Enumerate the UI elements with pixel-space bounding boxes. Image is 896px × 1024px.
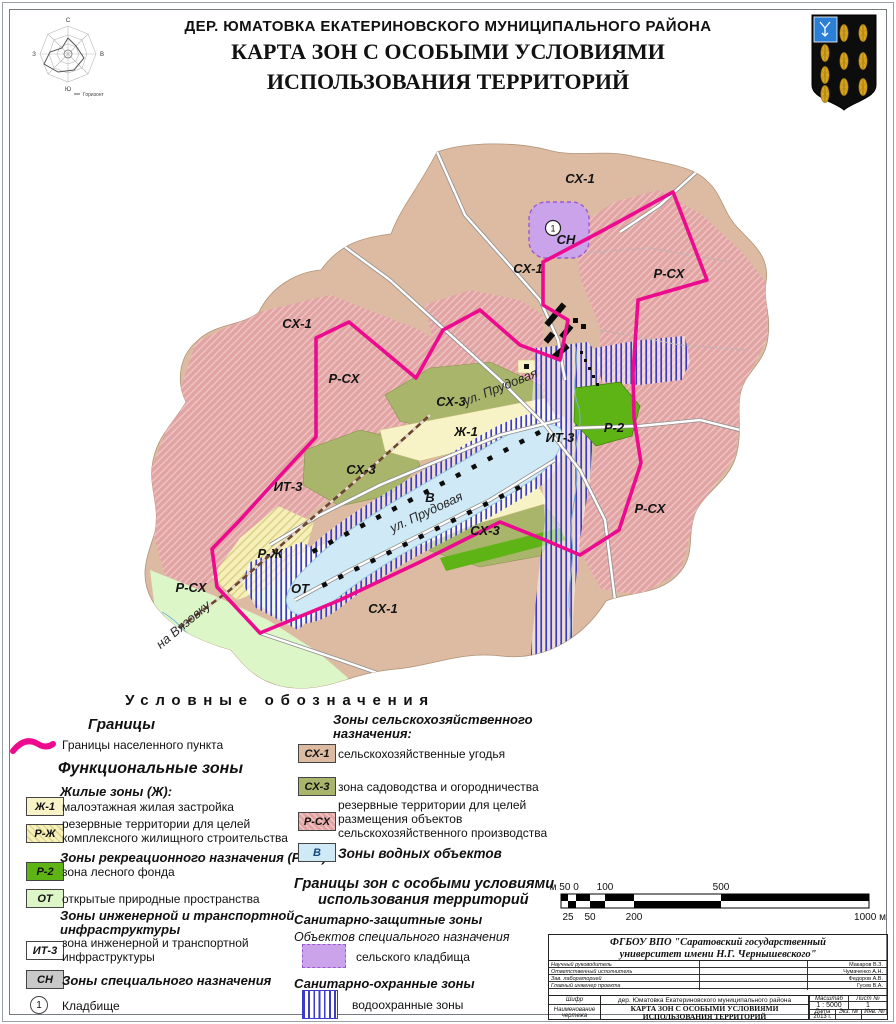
wind-rose-caption: Горизонт — [83, 92, 105, 98]
swatch-rzh: Р-Ж — [26, 824, 64, 843]
legend-rural-cemetery: сельского кладбища — [356, 950, 470, 964]
zone-label: СХ-1 — [513, 261, 542, 276]
cemetery-legend-marker: 1 — [30, 996, 48, 1014]
zone-label: Р-СХ — [176, 580, 208, 595]
swatch-sx3: СХ-3 — [298, 777, 336, 796]
legend-water-protection: водоохранные зоны — [352, 998, 463, 1012]
role-label: Научный руководитель — [551, 962, 612, 968]
page-title-line3: ИСПОЛЬЗОВАНИЯ ТЕРРИТОРИЙ — [140, 69, 756, 95]
zone-label: Р-СХ — [654, 266, 686, 281]
settlement-boundary-swatch — [8, 732, 58, 758]
drawing-title-line2: ИСПОЛЬЗОВАНИЯ ТЕРРИТОРИЙ — [643, 1013, 767, 1021]
drawing-title: КАРТА ЗОН С ОСОБЫМИ УСЛОВИЯМИ ИСПОЛЬЗОВА… — [601, 1005, 808, 1020]
legend-it3-desc2: инфраструктуры — [62, 950, 155, 964]
organization-line1: ФГБОУ ВПО "Саратовский государственный — [549, 937, 887, 949]
legend-rsx-desc2: размещения объектов — [338, 812, 462, 826]
scale-bar-segments — [561, 894, 869, 908]
scale-label-0: 0 — [573, 882, 579, 893]
organization-line2: университет имени Н.Г. Чернышевского" — [549, 949, 887, 961]
legend-cemetery-desc: Кладбище — [62, 999, 120, 1013]
legend-sx1-desc: сельскохозяйственные угодья — [338, 747, 505, 761]
wind-rose-w: З — [32, 52, 36, 58]
title-block-bottom: Шифр Наименование чертежа дер. Юматовка … — [549, 995, 887, 1020]
zone-label: СХ-3 — [470, 523, 500, 538]
zone-label: Р-2 — [604, 420, 625, 435]
role-row: Зав. лабораторией Федоров А.В. — [549, 975, 887, 982]
wind-rose-s: Ю — [65, 87, 71, 93]
role-label: Главный инженер проекта — [551, 983, 620, 989]
legend-rsx-desc3: сельскохозяйственного производства — [338, 826, 547, 840]
page-title-line2: КАРТА ЗОН С ОСОБЫМИ УСЛОВИЯМИ — [140, 39, 756, 65]
zone-label: СХ-3 — [346, 462, 376, 477]
swatch-it3: ИТ-3 — [26, 941, 64, 960]
zone-label: ИТ-3 — [274, 479, 304, 494]
role-name: Чумаченко А.Н. — [843, 969, 883, 975]
legend-v-desc: Зоны водных объектов — [338, 846, 502, 861]
role-label: Ответственный исполнитель — [551, 969, 632, 975]
value-column: дер. Юматовка Екатериновского муниципаль… — [601, 996, 809, 1020]
legend-header: Условные обозначения — [70, 692, 490, 709]
organization-name: ФГБОУ ВПО "Саратовский государственный у… — [549, 935, 887, 961]
legend-agri-title2: назначения: — [333, 726, 412, 741]
role-row: Главный инженер проекта Гусев В.А. — [549, 982, 887, 989]
object-label: Шифр — [549, 996, 600, 1005]
role-name: Федоров А.В. — [849, 976, 883, 982]
label-column: Шифр Наименование чертежа — [549, 996, 601, 1020]
legend-sn-desc: Зоны специального назначения — [62, 973, 271, 988]
legend-recreation-title: Зоны рекреационного назначения (Р ОТ): — [60, 850, 331, 865]
zone-label: СН — [557, 232, 576, 247]
legend-sx3-desc: зона садоводства и огородничества — [338, 780, 539, 794]
legend-rzh-desc1: резервные территории для целей — [62, 817, 250, 831]
legend-zouit-title1: Границы зон с особыми условиями — [294, 876, 554, 892]
scale-label-200: 200 — [626, 912, 643, 923]
copy-value — [835, 1015, 861, 1020]
swatch-v: В — [298, 843, 336, 862]
swatch-sx1: СХ-1 — [298, 744, 336, 763]
scale-label-500: 500 — [713, 882, 730, 893]
legend-functional-title: Функциональные зоны — [58, 760, 243, 778]
scale-label-m50: м 50 — [550, 882, 571, 893]
role-label: Зав. лабораторией — [551, 976, 602, 982]
role-name: Гусев В.А. — [857, 983, 883, 989]
title-block: ФГБОУ ВПО "Саратовский государственный у… — [548, 934, 888, 1020]
swatch-sn: СН — [26, 970, 64, 989]
zoning-map: 1 СХ-1СНСХ-1Р-СХСХ-1Р-СХСХ-3Ж-1ИТ-3Р-2СХ… — [0, 130, 896, 692]
scale-label-25: 25 — [562, 912, 574, 923]
zone-label: Р-СХ — [635, 501, 667, 516]
wind-rose: С В Ю З Горизонт — [16, 12, 128, 100]
map-title-block: ДЕР. ЮМАТОВКА ЕКАТЕРИНОВСКОГО МУНИЦИПАЛЬ… — [140, 18, 756, 95]
legend-sanitary-title: Санитарно-защитные зоны — [294, 912, 482, 927]
zone-label: СХ-1 — [368, 601, 397, 616]
swatch-rural-cemetery — [302, 944, 346, 968]
zone-label: СХ-1 — [565, 171, 594, 186]
zone-label: ИТ-3 — [546, 430, 576, 445]
swatch-water-protection — [302, 990, 338, 1019]
swatch-rsx: Р-СХ — [298, 812, 336, 831]
scale-label-50: 50 — [584, 912, 596, 923]
legend-zouit-title2: использования территорий — [318, 892, 529, 908]
legend-agri-title1: Зоны сельскохозяйственного — [333, 712, 533, 727]
coat-of-arms — [810, 13, 878, 113]
legend-it3-desc1: зона инженерной и транспортной — [62, 936, 249, 950]
page-title-line1: ДЕР. ЮМАТОВКА ЕКАТЕРИНОВСКОГО МУНИЦИПАЛЬ… — [140, 18, 756, 35]
swatch-zh1: Ж-1 — [26, 797, 64, 816]
legend-rsx-desc1: резервные территории для целей — [338, 798, 526, 812]
scale-label-100: 100 — [597, 882, 614, 893]
legend-sanitary-guard-title: Санитарно-охранные зоны — [294, 976, 475, 991]
legend-engineering-title1: Зоны инженерной и транспортной — [60, 908, 294, 923]
legend-special-objects: Объектов специального назначения — [294, 930, 510, 944]
zone-label: Р-Ж — [257, 546, 283, 561]
legend-borders-title: Границы — [88, 716, 155, 733]
zone-label: Р-СХ — [329, 371, 361, 386]
legend-engineering-title2: инфраструктуры — [60, 922, 180, 937]
wind-rose-e: В — [100, 52, 104, 58]
swatch-r2: Р-2 — [26, 862, 64, 881]
role-name: Макаров В.З. — [849, 962, 883, 968]
wind-rose-n: С — [66, 18, 71, 24]
role-row: Научный руководитель Макаров В.З. — [549, 961, 887, 968]
zone-label: Ж-1 — [453, 424, 478, 439]
zone-label: СХ-1 — [282, 316, 311, 331]
legend-r2-desc: зона лесного фонда — [62, 865, 175, 879]
legend-rzh-desc2: комплексного жилищного строительства — [62, 831, 288, 845]
map-sheet: С В Ю З Горизонт ДЕР. ЮМАТОВКА ЕКАТЕРИНО… — [0, 0, 896, 1024]
date-value: 2013 г. — [809, 1015, 835, 1020]
scale-label-1000m: 1000 м — [854, 912, 886, 923]
zone-label: ОТ — [291, 581, 310, 596]
role-row: Ответственный исполнитель Чумаченко А.Н. — [549, 968, 887, 975]
legend-residential-title: Жилые зоны (Ж): — [60, 784, 172, 799]
legend-ot-desc: открытые природные пространства — [62, 892, 260, 906]
scale-bar: м 50 0 100 500 25 50 200 1000 м — [548, 880, 893, 928]
cemetery-marker-number: 1 — [550, 224, 555, 234]
swatch-ot: ОТ — [26, 889, 64, 908]
drawing-label: Наименование чертежа — [549, 1005, 600, 1020]
inv-value — [861, 1015, 887, 1020]
legend-border-settlement: Границы населенного пункта — [62, 738, 223, 752]
scale-sheet-column: Масштаб Лист № 1 : 5000 1 Дата Экз. № Ин… — [809, 996, 887, 1020]
legend-zh1-desc: малоэтажная жилая застройка — [62, 800, 234, 814]
